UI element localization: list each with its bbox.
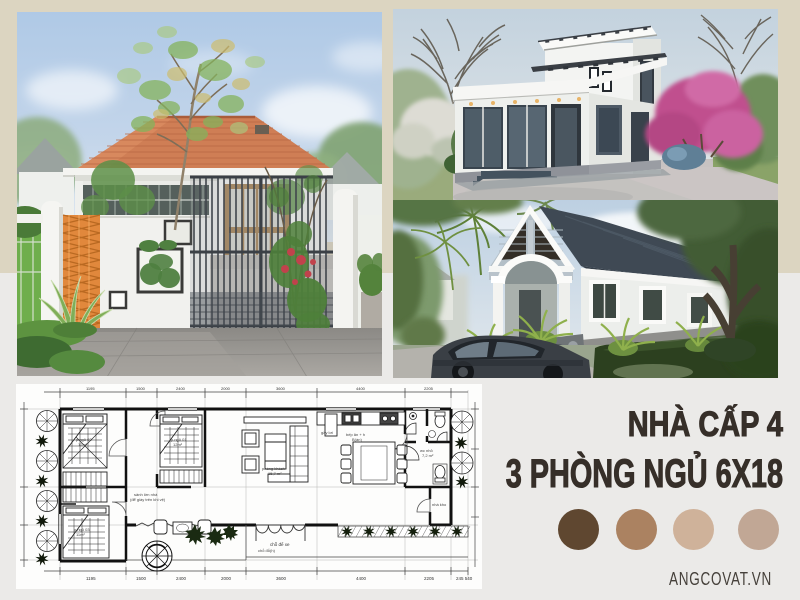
svg-text:3600: 3600 (276, 576, 287, 581)
svg-text:1195: 1195 (86, 386, 95, 391)
svg-text:2000: 2000 (221, 386, 231, 391)
svg-text:chỗ để xe: chỗ để xe (270, 541, 290, 547)
svg-text:gầy lơi: gầy lơi (321, 430, 333, 435)
svg-text:2400: 2400 (176, 576, 187, 581)
svg-text:1500: 1500 (136, 576, 147, 581)
svg-text:chỗ đỗ(h): chỗ đỗ(h) (258, 548, 276, 553)
svg-text:(để giày trên khi vệ): (để giày trên khi vệ) (130, 497, 166, 502)
svg-text:1195: 1195 (86, 576, 96, 581)
svg-text:3600: 3600 (276, 386, 286, 391)
svg-text:4400: 4400 (356, 386, 366, 391)
svg-text:7,2 m²: 7,2 m² (422, 453, 434, 458)
svg-text:12m²: 12m² (78, 442, 88, 447)
svg-text:2205: 2205 (424, 386, 434, 391)
svg-text:4400: 4400 (356, 576, 367, 581)
svg-text:12m²: 12m² (173, 442, 183, 447)
svg-text:1500: 1500 (136, 386, 146, 391)
svg-text:11m²: 11m² (76, 532, 85, 537)
svg-text:245 540: 245 540 (456, 576, 473, 581)
svg-text:2205: 2205 (424, 576, 435, 581)
svg-text:B(àn): B(àn) (352, 437, 362, 442)
svg-text:15,7 m²: 15,7 m² (268, 471, 282, 476)
svg-text:nhà kho: nhà kho (432, 502, 447, 507)
svg-text:2000: 2000 (221, 576, 232, 581)
svg-text:2400: 2400 (176, 386, 186, 391)
